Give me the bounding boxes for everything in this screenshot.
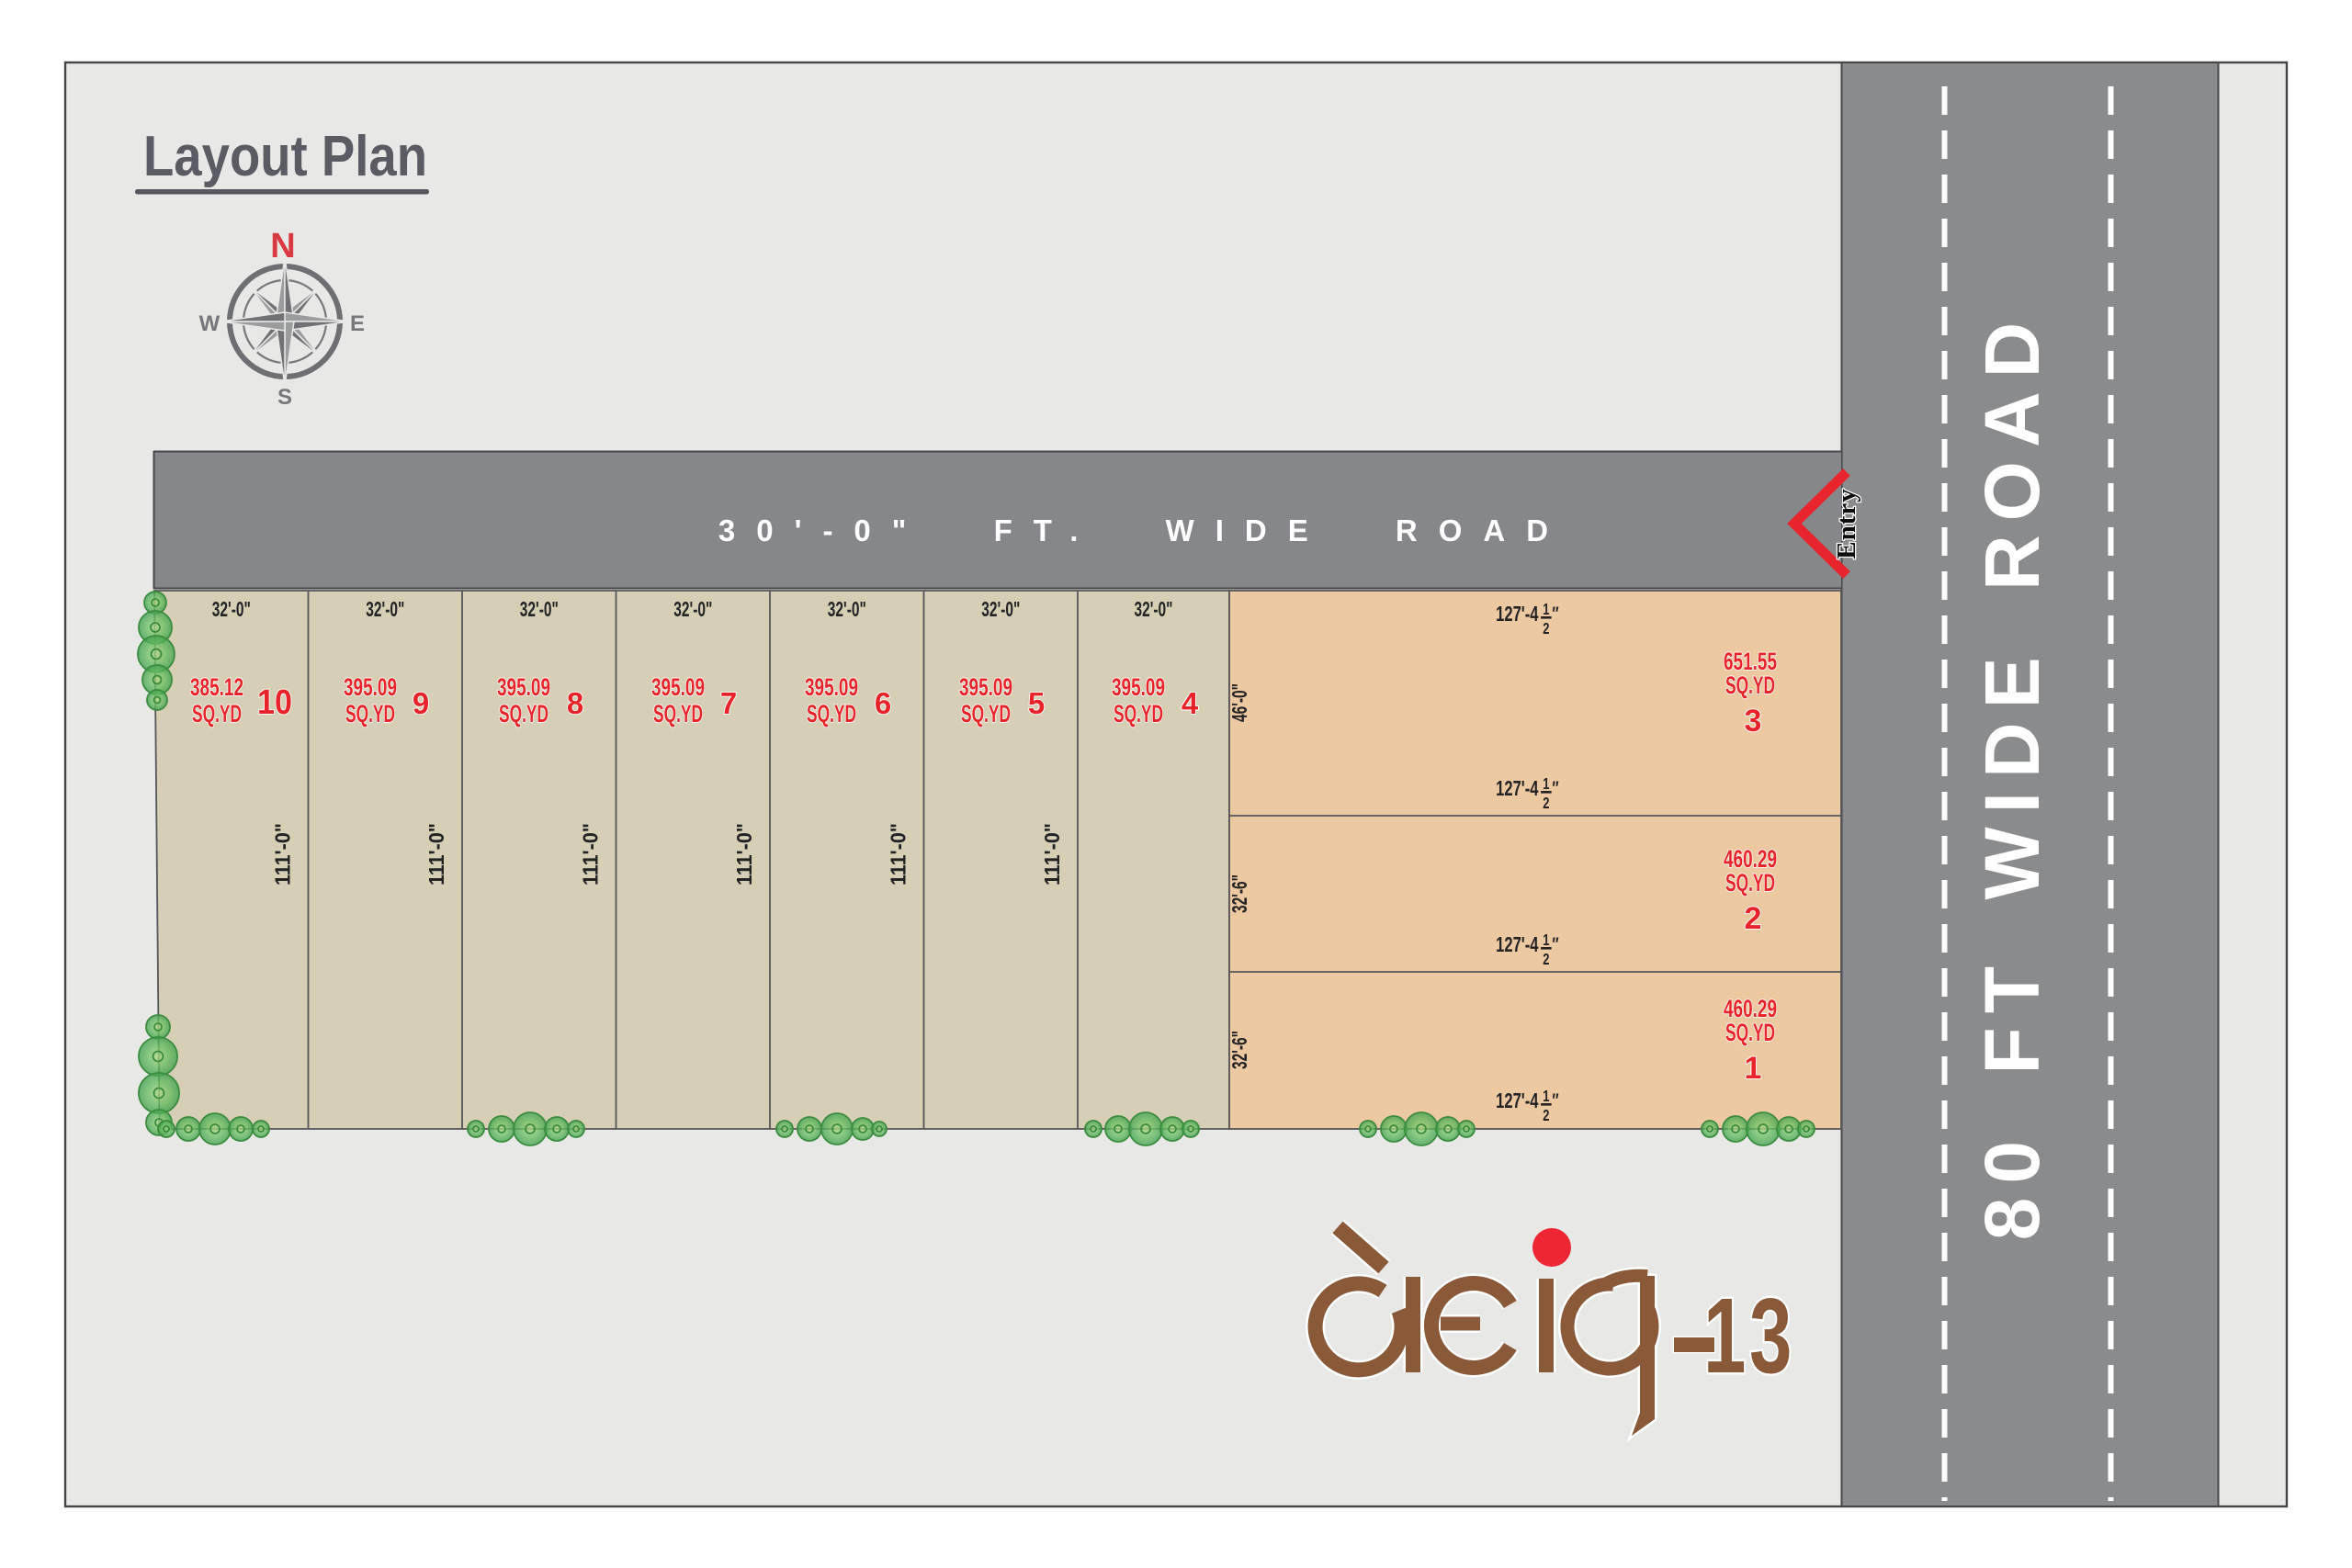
svg-text:SQ.YD: SQ.YD — [961, 700, 1011, 728]
svg-text:32'-0": 32'-0" — [981, 597, 1020, 621]
svg-text:Entry: Entry — [1832, 488, 1861, 559]
svg-text:1: 1 — [1543, 601, 1549, 619]
svg-text:5: 5 — [1028, 686, 1045, 720]
svg-text:13: 13 — [1703, 1278, 1795, 1396]
svg-text:395.09: 395.09 — [805, 673, 858, 701]
svg-text:SQ.YD: SQ.YD — [499, 700, 548, 728]
svg-text:30'-0" FT. WIDE ROAD: 30'-0" FT. WIDE ROAD — [718, 513, 1569, 547]
svg-text:32'-0": 32'-0" — [1135, 597, 1173, 621]
svg-text:1: 1 — [1543, 931, 1549, 950]
svg-text:111'-0": 111'-0" — [271, 823, 295, 886]
svg-text:46'-0": 46'-0" — [1227, 683, 1251, 722]
svg-text:″: ″ — [1552, 776, 1558, 798]
svg-text:127'-4: 127'-4 — [1496, 777, 1539, 800]
svg-text:2: 2 — [1543, 620, 1549, 638]
svg-text:10: 10 — [257, 683, 292, 722]
svg-text:385.12: 385.12 — [190, 673, 243, 701]
svg-text:SQ.YD: SQ.YD — [653, 700, 703, 728]
svg-text:6: 6 — [875, 686, 891, 720]
svg-text:SQ.YD: SQ.YD — [1725, 1019, 1775, 1046]
svg-text:4: 4 — [1182, 686, 1199, 720]
svg-text:9: 9 — [413, 686, 429, 720]
svg-text:395.09: 395.09 — [344, 673, 397, 701]
svg-text:2: 2 — [1745, 901, 1762, 936]
svg-text:7: 7 — [720, 686, 737, 720]
svg-text:111'-0": 111'-0" — [732, 823, 756, 886]
svg-text:32'-0": 32'-0" — [828, 597, 866, 621]
svg-text:127'-4: 127'-4 — [1496, 1089, 1539, 1112]
svg-text:32'-0": 32'-0" — [673, 597, 712, 621]
svg-text:395.09: 395.09 — [959, 673, 1012, 701]
svg-text:32'-0": 32'-0" — [212, 597, 251, 621]
svg-text:2: 2 — [1543, 951, 1549, 969]
svg-text:127'-4: 127'-4 — [1496, 603, 1539, 626]
svg-text:SQ.YD: SQ.YD — [1725, 671, 1775, 699]
svg-text:111'-0": 111'-0" — [424, 823, 448, 886]
svg-text:3: 3 — [1745, 704, 1762, 739]
svg-text:1: 1 — [1543, 775, 1549, 794]
svg-text:Layout Plan: Layout Plan — [143, 125, 427, 188]
svg-text:1: 1 — [1745, 1051, 1762, 1086]
svg-text:SQ.YD: SQ.YD — [345, 700, 395, 728]
svg-text:111'-0": 111'-0" — [579, 823, 603, 886]
svg-text:2: 2 — [1543, 1107, 1549, 1125]
svg-text:2: 2 — [1543, 795, 1549, 813]
svg-text:1: 1 — [1543, 1088, 1549, 1106]
svg-text:SQ.YD: SQ.YD — [1725, 869, 1775, 897]
svg-text:8: 8 — [567, 686, 583, 720]
svg-text:395.09: 395.09 — [497, 673, 550, 701]
svg-text:32'-6": 32'-6" — [1227, 1031, 1251, 1069]
svg-text:80 FT WIDE ROAD: 80 FT WIDE ROAD — [1969, 309, 2055, 1241]
svg-text:N: N — [270, 227, 295, 265]
svg-text:″: ″ — [1552, 602, 1558, 624]
svg-text:SQ.YD: SQ.YD — [192, 700, 242, 728]
svg-text:S: S — [277, 385, 292, 410]
svg-text:32'-6": 32'-6" — [1227, 874, 1251, 913]
svg-text:127'-4: 127'-4 — [1496, 933, 1539, 956]
svg-text:32'-0": 32'-0" — [520, 597, 559, 621]
svg-text:″: ″ — [1552, 932, 1558, 954]
svg-text:32'-0": 32'-0" — [366, 597, 404, 621]
svg-text:395.09: 395.09 — [651, 673, 705, 701]
svg-text:W: W — [199, 311, 220, 336]
svg-text:111'-0": 111'-0" — [887, 823, 910, 886]
svg-text:111'-0": 111'-0" — [1040, 823, 1064, 886]
svg-text:SQ.YD: SQ.YD — [1114, 700, 1163, 728]
svg-text:″: ″ — [1552, 1089, 1558, 1111]
svg-text:E: E — [350, 311, 365, 336]
svg-text:SQ.YD: SQ.YD — [807, 700, 856, 728]
svg-text:395.09: 395.09 — [1112, 673, 1165, 701]
